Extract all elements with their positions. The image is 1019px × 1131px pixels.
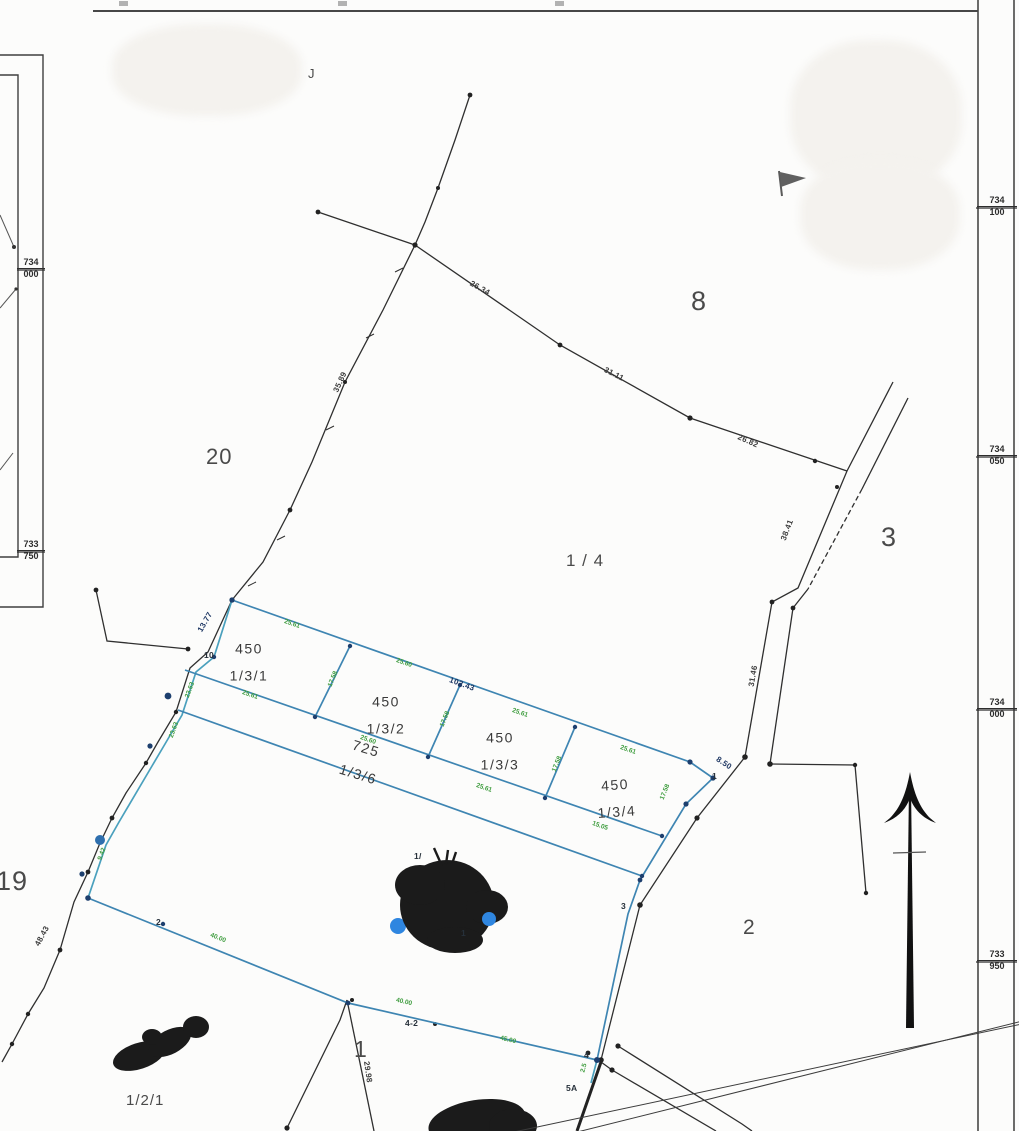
region-label-14: 1 / 4 xyxy=(566,551,604,571)
point-label-10: 10 xyxy=(204,650,214,660)
point-label-1: 1/ xyxy=(414,851,422,861)
region-label-J: J xyxy=(308,66,316,81)
inset-map-fragments xyxy=(0,215,16,470)
parcel-corner-dots xyxy=(79,597,715,1063)
sheet-frame xyxy=(93,0,1014,1131)
point-label-4: 4 xyxy=(584,1050,589,1060)
point-label-5A: 5A xyxy=(566,1083,577,1093)
redaction-blob-center xyxy=(395,848,508,953)
inset-sheet-frame xyxy=(0,55,43,607)
point-label-2: 2 xyxy=(156,917,161,927)
point-label-42: 4-2 xyxy=(405,1018,418,1028)
parcel-label-1-3-3: 4501/3/3 xyxy=(481,725,520,780)
point-label-3: 3 xyxy=(621,901,626,911)
parcel-label-1-3-4: 4501/3/4 xyxy=(595,770,637,827)
boundary-point-dots xyxy=(10,93,868,1131)
inset-grid-coordinate-label: 733750 xyxy=(17,539,45,563)
map-linework xyxy=(0,0,1019,1131)
grid-coordinate-label: 734050 xyxy=(977,444,1017,468)
north-arrow-icon xyxy=(884,772,936,1028)
parcel-label-1-3-1: 4501/3/1 xyxy=(230,636,269,691)
region-label-8: 8 xyxy=(691,286,707,317)
coordinate-tick-bars xyxy=(17,208,1017,962)
redaction-blob-bottom-left xyxy=(109,1016,209,1077)
black-boundary-lines xyxy=(2,95,908,1131)
grid-coordinate-label: 733950 xyxy=(977,949,1017,973)
region-label-19: 19 xyxy=(0,866,28,897)
cadastral-map-scan: J20831 / 419211/21/2/14501/3/14501/3/245… xyxy=(0,0,1019,1131)
point-label-1: 1 xyxy=(461,928,466,938)
survey-monument-circle xyxy=(95,835,105,845)
region-label-3: 3 xyxy=(881,522,897,553)
region-label-2: 2 xyxy=(743,916,756,940)
region-label-121: 1/2/1 xyxy=(126,1092,164,1109)
grid-coordinate-label: 734000 xyxy=(977,697,1017,721)
blue-marker-dot-right xyxy=(482,912,496,926)
flag-icon xyxy=(779,171,806,196)
parcel-label-1-3-2: 4501/3/2 xyxy=(367,689,406,744)
inset-grid-coordinate-label: 734000 xyxy=(17,257,45,281)
region-label-1: 1 xyxy=(354,1036,368,1063)
parcel-blue-lines xyxy=(88,600,713,1083)
grid-coordinate-label: 734100 xyxy=(977,195,1017,219)
point-label-1: 1 xyxy=(712,771,717,781)
region-label-20: 20 xyxy=(206,444,232,470)
